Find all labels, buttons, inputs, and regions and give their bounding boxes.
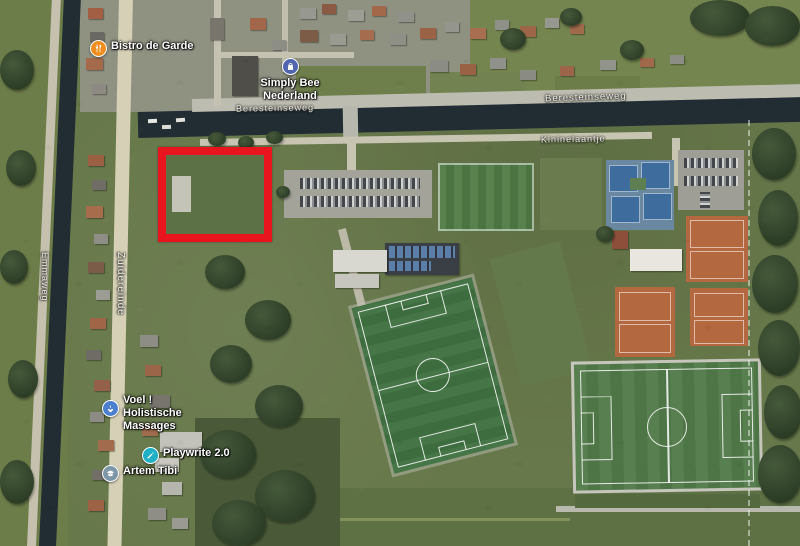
- building-roof: [148, 508, 166, 520]
- tree-cluster: [210, 345, 252, 383]
- clay-court-lines: [619, 292, 671, 321]
- tree-cluster: [500, 28, 526, 50]
- poi-label-line1: Voel !: [123, 394, 152, 406]
- clay-court-lines: [694, 320, 744, 344]
- poi-label-line2: Holistische: [123, 407, 182, 419]
- tree-cluster: [255, 385, 303, 427]
- building-roof: [360, 30, 374, 40]
- parked-cars-row: [684, 176, 738, 186]
- building-roof: [94, 380, 110, 391]
- parked-cars-row: [700, 192, 710, 208]
- main-soccer-pitch: [352, 277, 515, 474]
- solar-panel-array: [389, 261, 431, 271]
- tree-cluster: [245, 300, 291, 340]
- building-roof: [88, 8, 103, 19]
- poi-label: Artem Tibi: [123, 465, 177, 478]
- poi-label-line3: Massages: [123, 420, 176, 432]
- goal-box: [740, 410, 754, 442]
- building-roof: [145, 365, 161, 376]
- building-roof: [445, 22, 459, 32]
- tree-cluster: [0, 50, 34, 90]
- building-roof: [640, 58, 654, 67]
- poi-label: Simply Bee Nederland: [260, 77, 319, 103]
- tree-column-east: [752, 255, 798, 313]
- tree-cluster: [276, 186, 290, 198]
- road-label-zuidereinde: Zuidereinde: [115, 252, 126, 316]
- spa-icon: [102, 400, 119, 417]
- training-field-small: [438, 163, 534, 231]
- parcel-line: [330, 518, 570, 521]
- tennis-clubhouse: [630, 249, 682, 271]
- graduation-cap-icon: [102, 465, 119, 482]
- tree-cluster: [205, 255, 245, 289]
- clay-court-lines: [694, 293, 744, 317]
- tree-cluster: [8, 360, 38, 398]
- building-roof: [172, 518, 188, 529]
- tree-cluster: [0, 250, 28, 284]
- building-roof: [545, 18, 559, 28]
- road-label-kininelaantje: Kininelaantje: [541, 133, 606, 144]
- building-roof: [600, 60, 616, 70]
- building-roof: [92, 84, 106, 94]
- poi-voel-holistische-massages[interactable]: Voel ! Holistische Massages: [102, 394, 182, 434]
- building-roof: [210, 18, 224, 40]
- poi-label: Playwrite 2.0: [163, 447, 230, 460]
- tree-cluster: [6, 150, 36, 186]
- poi-label-line2: Nederland: [263, 90, 317, 102]
- solar-panel-array: [389, 246, 455, 258]
- building-roof: [272, 40, 286, 50]
- tree-row-kininelaantje: [266, 131, 283, 144]
- tennis-green-strip: [630, 178, 646, 190]
- tree-column-east: [764, 385, 800, 439]
- shed-red-roof: [612, 231, 628, 249]
- parked-cars-row: [300, 196, 420, 207]
- road-label-beresteinseweg-west: Beresteinseweg: [236, 102, 314, 113]
- building-roof: [372, 6, 386, 16]
- building-roof: [300, 30, 318, 42]
- building-roof: [162, 482, 182, 495]
- tree-cluster: [596, 226, 614, 242]
- building-roof: [86, 58, 103, 70]
- tree-row-kininelaantje: [208, 132, 226, 146]
- building-roof: [96, 290, 110, 300]
- southeast-pitch-surround: [575, 494, 760, 508]
- tree-column-east: [758, 445, 800, 503]
- clubhouse-building: [333, 250, 387, 272]
- clay-court-lines: [690, 220, 744, 248]
- goal-box: [581, 412, 595, 444]
- building-roof: [94, 234, 108, 244]
- tree-cluster: [745, 6, 800, 46]
- tree-column-east: [752, 128, 796, 180]
- building-roof: [86, 350, 101, 360]
- tennis-court-blue: [611, 196, 640, 223]
- tennis-court-blue: [643, 193, 672, 220]
- building-roof: [90, 318, 106, 329]
- building-roof: [322, 4, 336, 14]
- parked-cars-row: [300, 178, 420, 189]
- southeast-soccer-pitch: [571, 358, 763, 493]
- poi-label: Voel ! Holistische Massages: [123, 394, 182, 434]
- building-roof: [98, 440, 114, 451]
- tree-cluster: [212, 500, 266, 546]
- building-roof: [86, 206, 103, 218]
- building-roof: [398, 12, 414, 22]
- building-roof: [88, 500, 104, 511]
- moored-boat: [162, 125, 171, 129]
- poi-bistro-de-garde[interactable]: Bistro de Garde: [90, 40, 194, 57]
- building-roof: [300, 8, 316, 19]
- poi-playwrite[interactable]: Playwrite 2.0: [142, 447, 230, 464]
- building-roof: [470, 28, 486, 39]
- poi-simply-bee-nederland[interactable]: Simply Bee Nederland: [244, 58, 336, 103]
- tree-cluster: [690, 0, 750, 36]
- moored-boat: [148, 119, 157, 123]
- tree-cluster: [560, 8, 582, 26]
- poi-label: Bistro de Garde: [111, 40, 194, 53]
- building-roof: [430, 60, 448, 72]
- building-roof: [490, 58, 506, 69]
- parked-cars-row: [684, 158, 738, 168]
- tree-column-east: [758, 320, 800, 376]
- shopping-bag-icon: [282, 58, 299, 75]
- moored-boat: [176, 118, 185, 123]
- building-roof: [348, 10, 364, 21]
- clubhouse-building: [335, 274, 379, 288]
- building-roof: [560, 66, 574, 76]
- building-roof: [390, 34, 406, 45]
- restaurant-icon: [90, 40, 107, 57]
- tree-cluster: [620, 40, 644, 60]
- building-roof: [520, 70, 536, 80]
- road-label-emmaweg: Emmaweg: [40, 252, 50, 302]
- poi-label-line1: Simply Bee: [260, 77, 319, 89]
- building-roof: [92, 180, 106, 190]
- parcel-boundary-dashed: [748, 120, 750, 546]
- building-roof: [460, 64, 476, 75]
- building-roof: [330, 34, 346, 45]
- building-roof: [88, 262, 104, 273]
- tree-column-east: [758, 190, 798, 246]
- poi-artem-tibi[interactable]: Artem Tibi: [102, 465, 177, 482]
- clay-court-lines: [690, 251, 744, 279]
- clay-court-lines: [619, 324, 671, 353]
- satellite-map[interactable]: Beresteinseweg Beresteinseweg Kininelaan…: [0, 0, 800, 546]
- building-roof: [250, 18, 266, 30]
- tree-cluster: [0, 460, 34, 504]
- building-roof: [140, 335, 158, 347]
- pencil-icon: [142, 447, 159, 464]
- building-roof: [420, 28, 436, 39]
- building-roof: [88, 155, 104, 166]
- highlight-rectangle: [158, 147, 272, 242]
- building-roof: [670, 55, 684, 64]
- grass-training-field: [540, 158, 602, 230]
